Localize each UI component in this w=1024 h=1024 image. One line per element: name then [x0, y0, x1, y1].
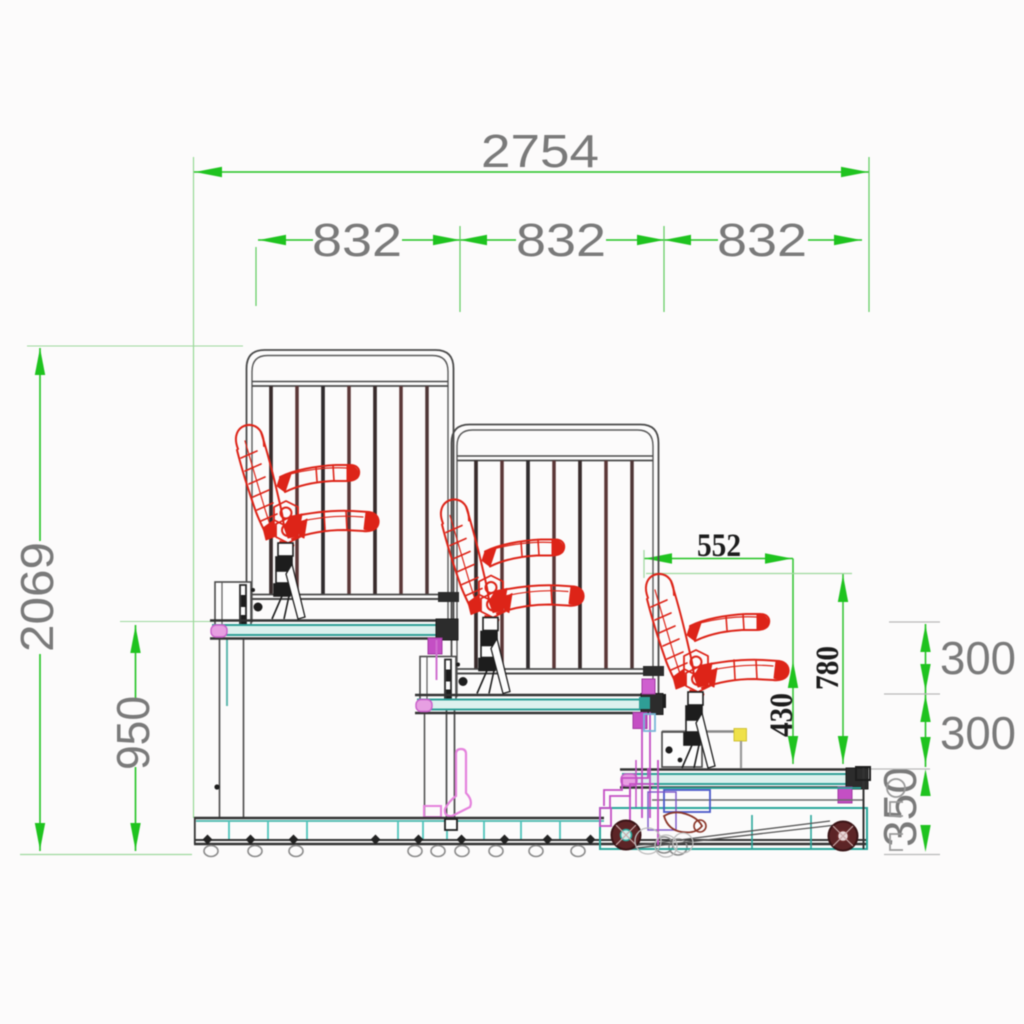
svg-text:430: 430 [764, 693, 800, 737]
svg-text:300: 300 [940, 707, 1016, 759]
svg-text:2069: 2069 [11, 542, 63, 652]
svg-text:780: 780 [810, 646, 846, 690]
svg-text:832: 832 [516, 214, 606, 266]
svg-text:832: 832 [312, 214, 402, 266]
svg-text:832: 832 [717, 214, 807, 266]
svg-text:950: 950 [107, 696, 159, 770]
svg-text:2754: 2754 [481, 125, 599, 177]
svg-text:300: 300 [940, 632, 1016, 684]
svg-text:552: 552 [697, 528, 741, 564]
